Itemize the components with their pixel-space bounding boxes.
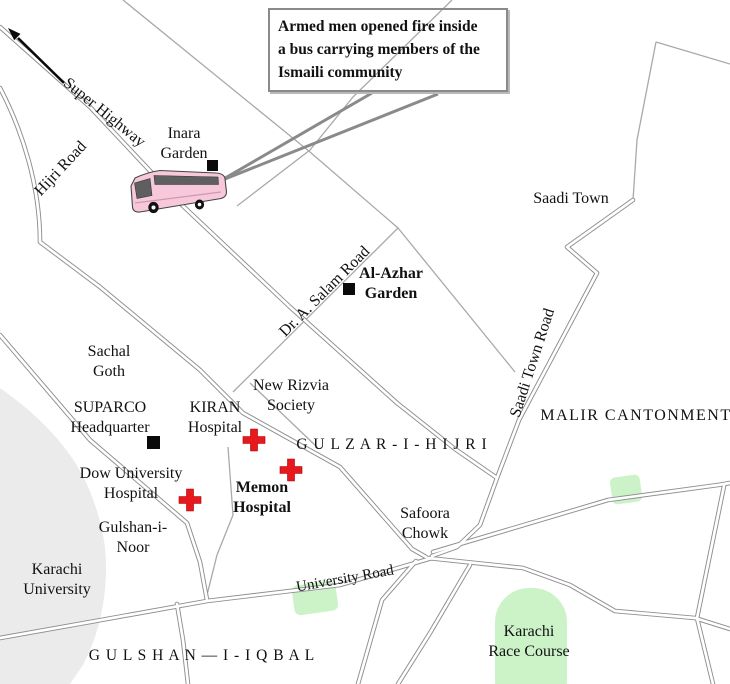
label-al-azhar-garden: Al-AzharGarden xyxy=(359,264,423,304)
label-inara-garden: InaraGarden xyxy=(160,124,207,164)
label-saadi-town: Saadi Town xyxy=(533,189,608,209)
minor-road xyxy=(656,42,730,64)
label-kiran-hospital: KIRANHospital xyxy=(188,398,242,438)
callout-line: a bus carrying members of the xyxy=(278,38,498,61)
callout-line: Armed men opened fire inside xyxy=(278,15,498,38)
right-edge-road xyxy=(697,486,724,684)
label-gulzar-i-hijri: G U L Z A R - I - H I J R I xyxy=(296,435,487,455)
karachi-incident-map: Armed men opened fire inside a bus carry… xyxy=(0,0,730,684)
minor-road xyxy=(207,447,233,595)
label-sachal-goth: SachalGoth xyxy=(88,342,131,382)
incident-callout-box: Armed men opened fire inside a bus carry… xyxy=(268,8,508,92)
minor-road xyxy=(633,42,656,200)
label-gulshan-i-noor: Gulshan-i-Noor xyxy=(99,518,167,558)
inara-garden-marker xyxy=(207,160,218,171)
label-gulshan-i-iqbal: G U L S H A N — I - I Q B A L xyxy=(89,646,316,666)
label-safoora-chowk: SafooraChowk xyxy=(400,504,450,544)
bus-icon xyxy=(131,171,227,214)
label-karachi-university: KarachiUniversity xyxy=(23,560,91,600)
label-dow-university-hospital: Dow UniversityHospital xyxy=(80,464,183,504)
label-suparco-headquarter: SUPARCOHeadquarter xyxy=(70,398,149,438)
label-karachi-race-course: KarachiRace Course xyxy=(488,622,569,662)
label-malir-cantonment: MALIR CANTONMENT xyxy=(540,406,730,426)
label-new-rizvia-society: New RizviaSociety xyxy=(253,376,329,416)
bus-side-windows xyxy=(154,176,219,185)
label-memon-hospital: MemonHospital xyxy=(233,478,291,518)
east-road-upper xyxy=(433,483,730,552)
northwest-arrow-icon xyxy=(8,28,64,83)
callout-line: Ismaili community xyxy=(278,61,498,84)
kiran-hospital-cross-icon xyxy=(243,429,265,451)
